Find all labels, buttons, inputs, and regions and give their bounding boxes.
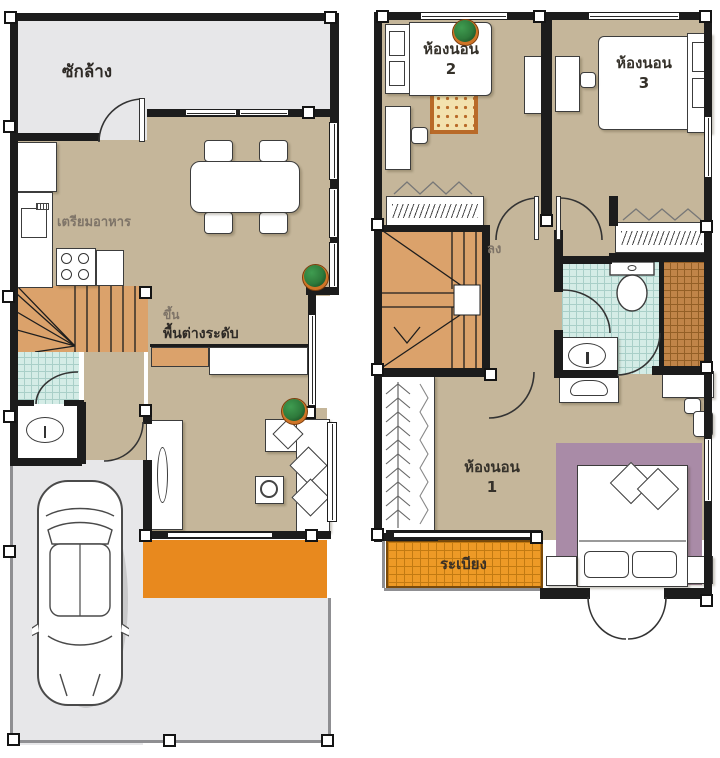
wall xyxy=(308,294,316,316)
dining-chair xyxy=(259,212,288,234)
wall xyxy=(609,196,618,226)
bedroom2-desk xyxy=(385,106,411,170)
bedroom3-desk xyxy=(555,56,580,112)
bedroom2-door-arc xyxy=(496,198,538,240)
bedroom2-label-line2: 2 xyxy=(446,60,456,80)
wall xyxy=(704,12,712,604)
pillow xyxy=(389,61,405,86)
bedroom2-door-leaf xyxy=(534,196,539,240)
bedroom2-label: ห้องนอน 2 xyxy=(407,40,495,79)
window xyxy=(329,188,338,238)
window xyxy=(329,122,338,180)
bedroom2-chair xyxy=(411,127,428,144)
sliding-door xyxy=(168,532,272,538)
column xyxy=(139,529,152,542)
laundry-door-arc xyxy=(99,99,143,142)
bedroom1-label: ห้องนอน 1 xyxy=(452,458,532,497)
balcony-edge xyxy=(382,540,385,588)
burner-icon xyxy=(78,253,89,264)
clothes-rack-icon xyxy=(380,378,433,532)
column xyxy=(139,404,152,417)
wall xyxy=(10,400,34,406)
bedroom3-label: ห้องนอน 3 xyxy=(598,54,690,93)
window xyxy=(704,438,712,502)
vanity-tap-icon xyxy=(586,352,589,364)
column xyxy=(2,290,15,303)
wall xyxy=(77,402,86,464)
hanging-clothes-icon xyxy=(623,207,703,222)
column xyxy=(305,529,318,542)
tv-icon xyxy=(157,447,168,503)
wc-door-arc xyxy=(36,372,78,404)
column xyxy=(321,734,334,747)
wall xyxy=(562,256,612,264)
wardrobe-hatch-icon xyxy=(621,231,702,245)
dining-table xyxy=(190,161,300,213)
bedroom2-tv-cabinet xyxy=(524,56,542,114)
column xyxy=(699,10,712,23)
bedroom3-wardrobe xyxy=(615,222,708,253)
bedroom3-door-leaf xyxy=(556,196,561,240)
bedroom2-rug xyxy=(430,90,478,134)
column xyxy=(484,368,497,381)
wall xyxy=(378,225,490,232)
wall xyxy=(378,368,488,377)
column xyxy=(3,410,16,423)
pillow xyxy=(584,551,629,578)
column xyxy=(700,361,713,374)
hanging-clothes-icon xyxy=(394,180,476,196)
column xyxy=(163,734,176,747)
refrigerator xyxy=(17,142,57,192)
balcony-sliding-door xyxy=(394,532,534,538)
dresser-tray-icon xyxy=(570,380,608,396)
faucet-icon xyxy=(36,203,49,210)
split-level-step xyxy=(151,347,209,367)
column xyxy=(371,528,384,541)
car xyxy=(32,478,129,711)
lamp-icon xyxy=(260,480,278,498)
side-table xyxy=(255,476,284,504)
dining-chair xyxy=(204,140,233,162)
column xyxy=(700,220,713,233)
nightstand xyxy=(546,556,577,586)
window xyxy=(327,422,337,522)
wall xyxy=(10,133,100,141)
window xyxy=(588,12,680,20)
bedroom2-wardrobe xyxy=(386,196,484,226)
wc-basin-tap xyxy=(44,426,46,438)
stairs-down-label: ลง xyxy=(487,238,501,259)
shower-door-arc xyxy=(617,333,660,375)
column xyxy=(533,10,546,23)
bedroom1-label-line1: ห้องนอน xyxy=(464,458,520,478)
carport-edge xyxy=(10,462,13,742)
bed1-fold-line xyxy=(579,540,686,542)
column xyxy=(3,545,16,558)
wall xyxy=(374,12,382,542)
wall xyxy=(540,588,590,599)
balcony-edge xyxy=(384,588,544,591)
garage-door-arc xyxy=(104,422,143,461)
column xyxy=(4,11,17,24)
column xyxy=(376,10,389,23)
plant-icon xyxy=(302,264,329,291)
wall xyxy=(10,458,82,466)
window xyxy=(329,242,338,288)
stairs-first-floor xyxy=(17,286,148,352)
dining-chair xyxy=(259,140,288,162)
laundry-door-leaf xyxy=(139,98,145,142)
column xyxy=(530,531,543,544)
floor-plan-canvas: ซักล้าง เตรียมอาหาร ขึ้น พื้นต่างระดับ xyxy=(0,0,720,758)
wall xyxy=(541,20,552,218)
column xyxy=(700,594,713,607)
bedroom3-door-arc xyxy=(560,198,602,240)
column xyxy=(139,286,152,299)
window xyxy=(308,314,316,406)
wall xyxy=(556,370,618,378)
bedroom2-label-line1: ห้องนอน xyxy=(423,40,479,60)
stairs-second-floor xyxy=(380,227,483,370)
burner-icon xyxy=(61,253,72,264)
column xyxy=(371,218,384,231)
wall xyxy=(10,13,18,463)
laundry-label: ซักล้าง xyxy=(62,58,112,85)
kitchen-sink xyxy=(21,208,47,238)
bedroom3-chair xyxy=(580,72,596,88)
pillow xyxy=(389,31,405,56)
dining-chair xyxy=(204,212,233,234)
column xyxy=(7,733,20,746)
window xyxy=(704,116,712,178)
plant-icon xyxy=(281,398,308,425)
column xyxy=(3,120,16,133)
bedroom3-label-line1: ห้องนอน xyxy=(616,54,672,74)
kitchen-counter-2 xyxy=(96,250,124,286)
storage-bench xyxy=(209,347,308,375)
carport-edge xyxy=(328,598,331,743)
burner-icon xyxy=(61,269,72,280)
kitchen-label: เตรียมอาหาร xyxy=(57,211,131,232)
column xyxy=(540,214,553,227)
pillow xyxy=(632,551,677,578)
window xyxy=(185,109,237,116)
column xyxy=(324,11,337,24)
bedroom3-label-line2: 3 xyxy=(639,74,649,94)
column xyxy=(371,363,384,376)
wall xyxy=(143,460,152,534)
wall xyxy=(609,253,709,262)
burner-icon xyxy=(78,269,89,280)
shower-floor xyxy=(663,262,708,368)
toilet xyxy=(608,260,656,314)
stove xyxy=(56,248,96,286)
french-doors-arc xyxy=(588,597,666,639)
wall xyxy=(14,13,336,21)
wardrobe-hatch-icon xyxy=(392,204,478,218)
porch-floor xyxy=(143,540,327,598)
column xyxy=(302,106,315,119)
bedroom1-label-line2: 1 xyxy=(487,478,497,498)
bathroom-door-arc xyxy=(563,290,610,333)
balcony-label: ระเบียง xyxy=(440,552,487,576)
split-level-label: พื้นต่างระดับ xyxy=(163,323,239,345)
window xyxy=(239,109,289,116)
